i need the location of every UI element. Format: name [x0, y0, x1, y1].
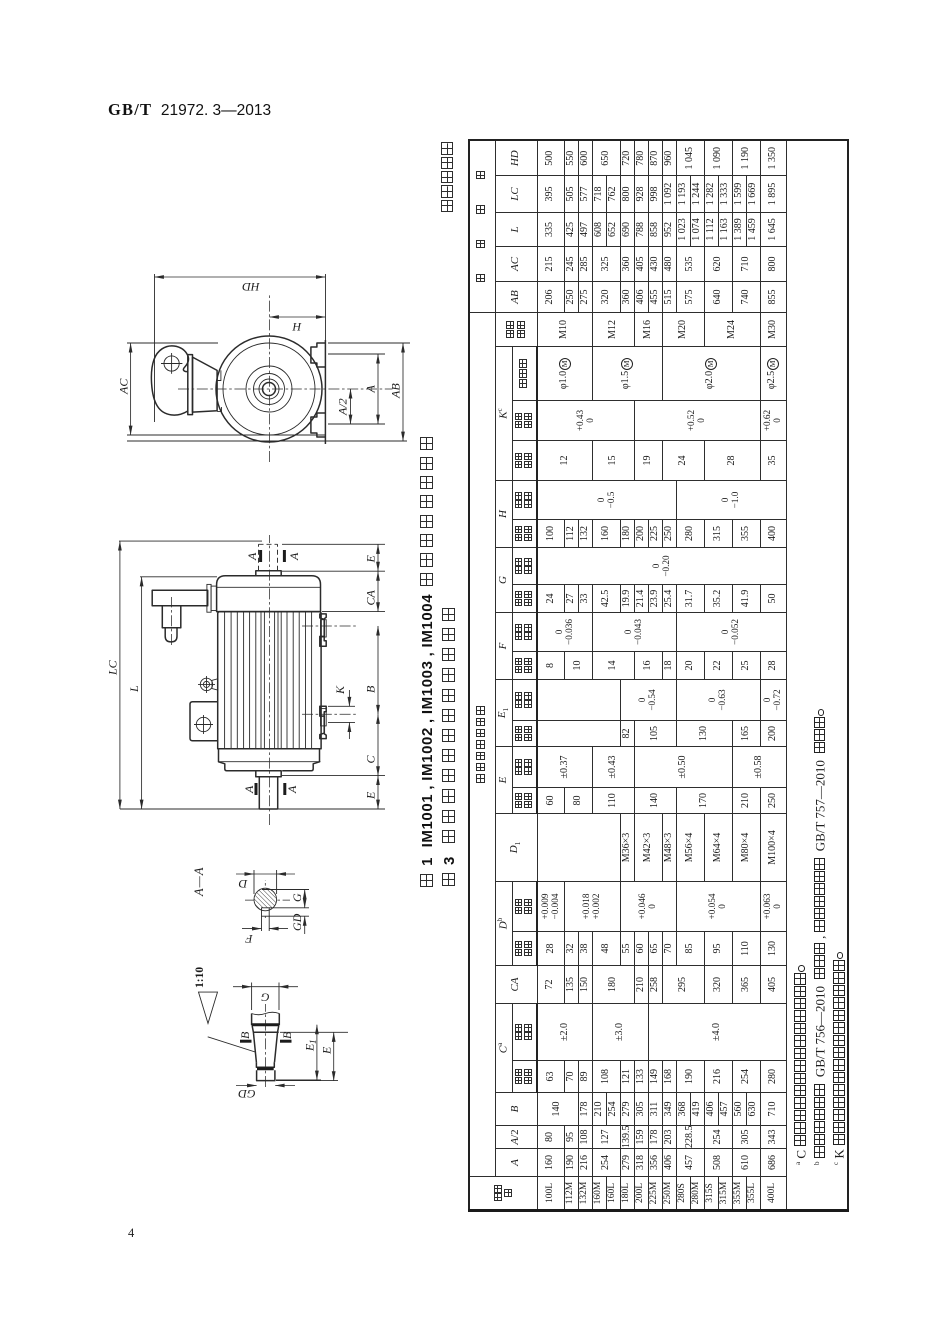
svg-text:E: E	[303, 1043, 317, 1052]
svg-text:E: E	[319, 1046, 333, 1055]
svg-text:1:10: 1:10	[194, 967, 206, 988]
svg-text:E: E	[364, 555, 378, 564]
svg-text:CA: CA	[364, 589, 378, 605]
svg-text:1: 1	[308, 1040, 318, 1045]
svg-text:F: F	[245, 932, 254, 946]
svg-text:GD: GD	[238, 1087, 256, 1101]
svg-text:H: H	[291, 320, 302, 334]
svg-text:C: C	[364, 755, 378, 764]
svg-text:A: A	[285, 785, 299, 794]
svg-text:L: L	[127, 685, 141, 693]
svg-text:A — A: A — A	[192, 867, 206, 897]
svg-text:AB: AB	[389, 383, 403, 399]
svg-text:HD: HD	[242, 280, 261, 294]
svg-text:GD: GD	[290, 913, 304, 931]
svg-text:AC: AC	[117, 378, 131, 395]
svg-text:A: A	[245, 552, 259, 561]
svg-text:B: B	[238, 1031, 252, 1039]
svg-text:B: B	[364, 685, 378, 693]
svg-text:G: G	[290, 893, 304, 902]
svg-text:A/2: A/2	[336, 398, 350, 416]
svg-text:K: K	[333, 685, 347, 695]
svg-text:D: D	[238, 877, 248, 891]
svg-text:G: G	[261, 991, 270, 1005]
svg-text:LC: LC	[106, 659, 120, 676]
svg-text:E: E	[364, 791, 378, 800]
svg-text:A: A	[364, 385, 378, 394]
svg-text:A: A	[287, 552, 301, 561]
svg-text:A: A	[242, 785, 256, 794]
